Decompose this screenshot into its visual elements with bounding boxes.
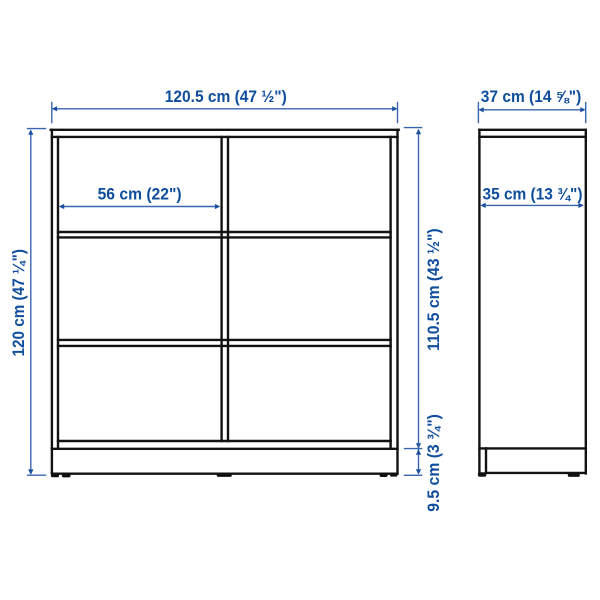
svg-text:110.5 cm (43 ½"): 110.5 cm (43 ½") [424, 228, 443, 351]
svg-text:120.5 cm (47 ½"): 120.5 cm (47 ½") [165, 87, 287, 106]
svg-text:120 cm (47 ¼"): 120 cm (47 ¼") [9, 249, 28, 357]
svg-text:9.5 cm (3 ¾"): 9.5 cm (3 ¾") [424, 414, 443, 512]
svg-text:37 cm (14 ⅝"): 37 cm (14 ⅝") [481, 87, 582, 106]
svg-text:35 cm (13 ¾"): 35 cm (13 ¾") [483, 185, 583, 204]
svg-text:56 cm (22"): 56 cm (22") [98, 184, 182, 203]
